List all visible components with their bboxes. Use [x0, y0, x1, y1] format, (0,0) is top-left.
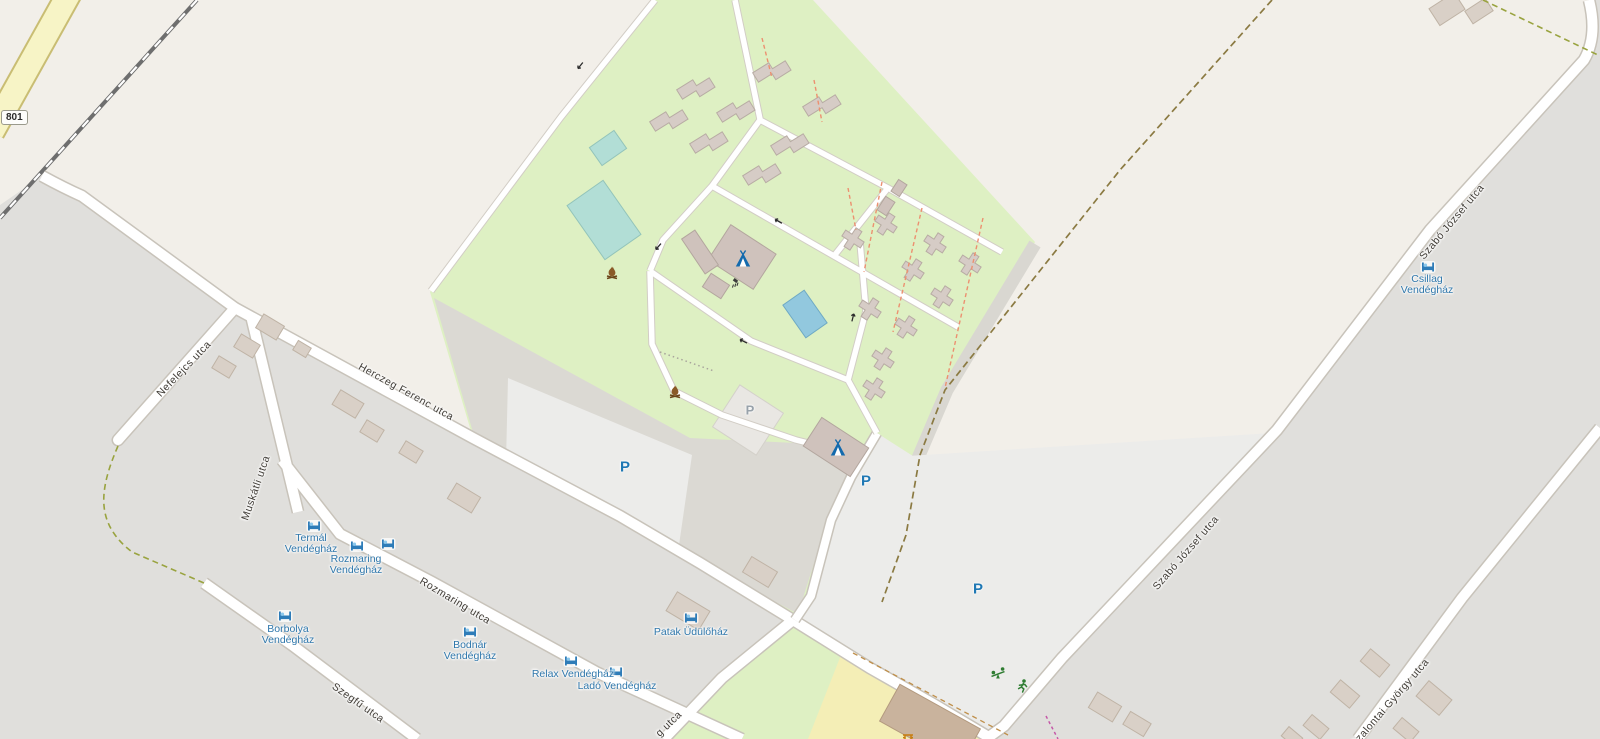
poi-label-borbolya: Borbolya Vendégház: [262, 624, 315, 646]
bed-icon: [1421, 261, 1436, 273]
bed-icon: [278, 610, 293, 622]
bed-icon: [564, 655, 579, 667]
poi-line: Vendégház: [444, 651, 497, 662]
parking-label: P: [861, 473, 871, 490]
bed-icon: [463, 626, 478, 638]
map-tile-layer: [0, 0, 1600, 739]
poi-line: Relax Vendégház: [532, 669, 614, 680]
poi-label-relax: Relax Vendégház: [532, 669, 614, 680]
poi-line: Ladó Vendégház: [578, 681, 657, 692]
bed-icon: [684, 612, 699, 624]
parking-label: P: [620, 459, 630, 476]
poi-label-rozmaring-vendeghaz: Rozmaring Vendégház: [330, 554, 383, 576]
parking-label: P: [973, 581, 983, 598]
poi-label-csillag: Csillag Vendégház: [1401, 274, 1454, 296]
parking-label-private: P: [746, 403, 755, 418]
poi-line: Patak Üdülőház: [654, 627, 728, 638]
map-canvas[interactable]: 801 Nefelejcs utca Muskátli utca Herczeg…: [0, 0, 1600, 739]
bed-icon: [381, 538, 396, 550]
poi-label-lado: Ladó Vendégház: [578, 681, 657, 692]
poi-line: Vendégház: [330, 565, 383, 576]
road-ref-shield: 801: [1, 110, 28, 125]
poi-label-patak: Patak Üdülőház: [654, 627, 728, 638]
bed-icon: [350, 540, 365, 552]
poi-label-bodnar: Bodnár Vendégház: [444, 640, 497, 662]
bed-icon: [307, 520, 322, 532]
poi-line: Vendégház: [262, 635, 315, 646]
poi-label-termal: Termál Vendégház: [285, 533, 338, 555]
poi-line: Vendégház: [1401, 285, 1454, 296]
